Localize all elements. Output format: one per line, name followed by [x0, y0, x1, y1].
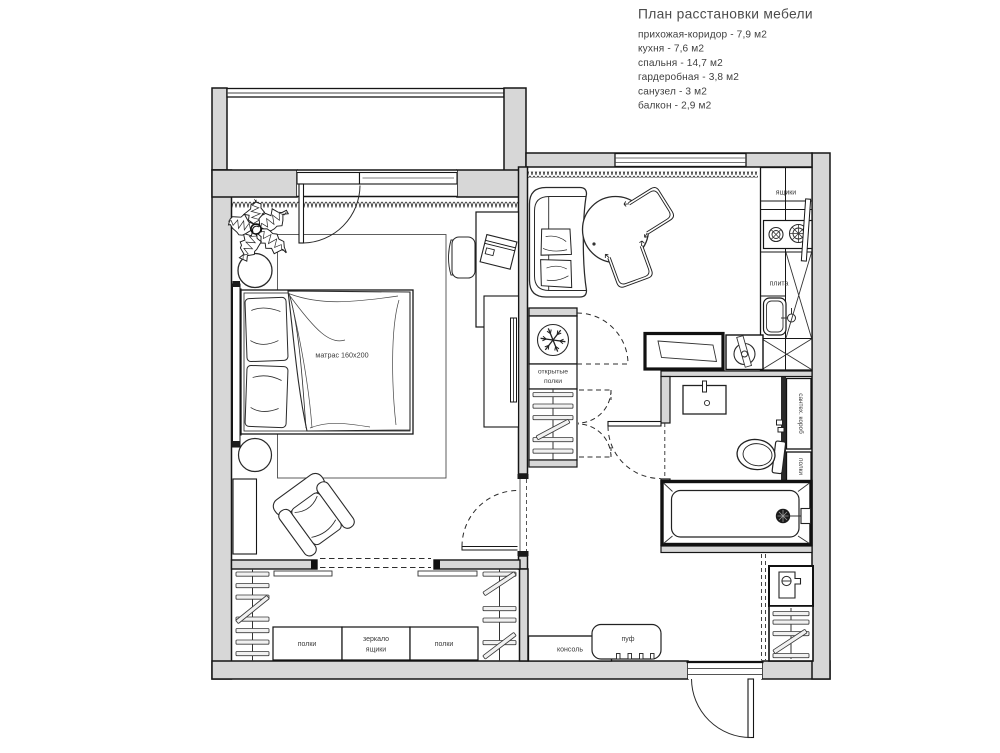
svg-text:полки: полки — [544, 378, 562, 385]
svg-text:спальня - 14,7 м2: спальня - 14,7 м2 — [638, 58, 723, 69]
svg-text:санузел - 3 м2: санузел - 3 м2 — [638, 86, 707, 97]
svg-text:полки: полки — [797, 458, 804, 475]
svg-text:ящики: ящики — [366, 647, 387, 654]
svg-text:прихожая-коридор - 7,9 м2: прихожая-коридор - 7,9 м2 — [638, 30, 767, 41]
svg-text:пуф: пуф — [622, 636, 635, 643]
svg-text:кухня - 7,6 м2: кухня - 7,6 м2 — [638, 44, 704, 55]
svg-text:консоль: консоль — [557, 647, 583, 654]
svg-text:матрас 160х200: матрас 160х200 — [315, 351, 368, 360]
svg-text:зеркало: зеркало — [363, 636, 389, 643]
svg-text:сантех. короб: сантех. короб — [797, 393, 805, 434]
svg-text:ящики: ящики — [776, 190, 797, 197]
svg-text:балкон - 2,9 м2: балкон - 2,9 м2 — [638, 100, 712, 112]
svg-text:плита: плита — [770, 281, 789, 288]
svg-text:гардеробная - 3,8 м2: гардеробная - 3,8 м2 — [638, 71, 739, 83]
svg-text:полки: полки — [298, 641, 317, 648]
svg-text:полки: полки — [435, 641, 454, 648]
svg-text:открытые: открытые — [538, 369, 568, 376]
svg-text:План расстановки мебели: План расстановки мебели — [638, 7, 813, 22]
